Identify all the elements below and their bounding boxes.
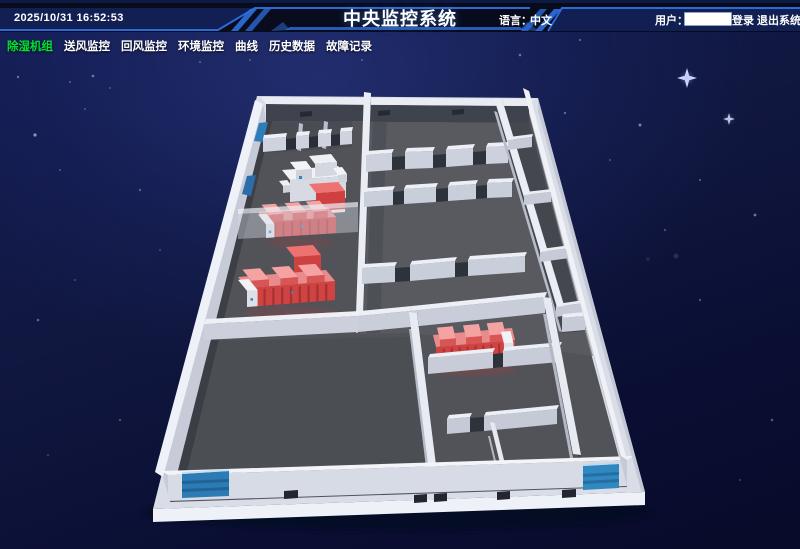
user-input[interactable] bbox=[684, 12, 732, 26]
nav-item-fault-records[interactable]: 故障记录 bbox=[324, 37, 374, 55]
nav-item-history-data[interactable]: 历史数据 bbox=[267, 37, 317, 55]
login-button[interactable]: 登录 bbox=[732, 12, 754, 28]
nav-item-environment-monitoring[interactable]: 环境监控 bbox=[176, 37, 226, 55]
logout-button[interactable]: 退出系统 bbox=[757, 12, 800, 28]
nav-item-curves[interactable]: 曲线 bbox=[233, 37, 260, 55]
language-selector[interactable]: 中文 bbox=[530, 12, 552, 28]
language-label: 语言： bbox=[499, 12, 532, 28]
nav-item-dehumidifier-unit[interactable]: 除湿机组 bbox=[5, 37, 55, 55]
building-3d-model bbox=[143, 88, 653, 530]
main-nav: 除湿机组 送风监控 回风监控 环境监控 曲线 历史数据 故障记录 bbox=[5, 37, 374, 55]
nav-item-supply-air-monitoring[interactable]: 送风监控 bbox=[62, 37, 112, 55]
floorplan-3d-view[interactable] bbox=[0, 0, 800, 549]
nav-item-return-air-monitoring[interactable]: 回风监控 bbox=[119, 37, 169, 55]
